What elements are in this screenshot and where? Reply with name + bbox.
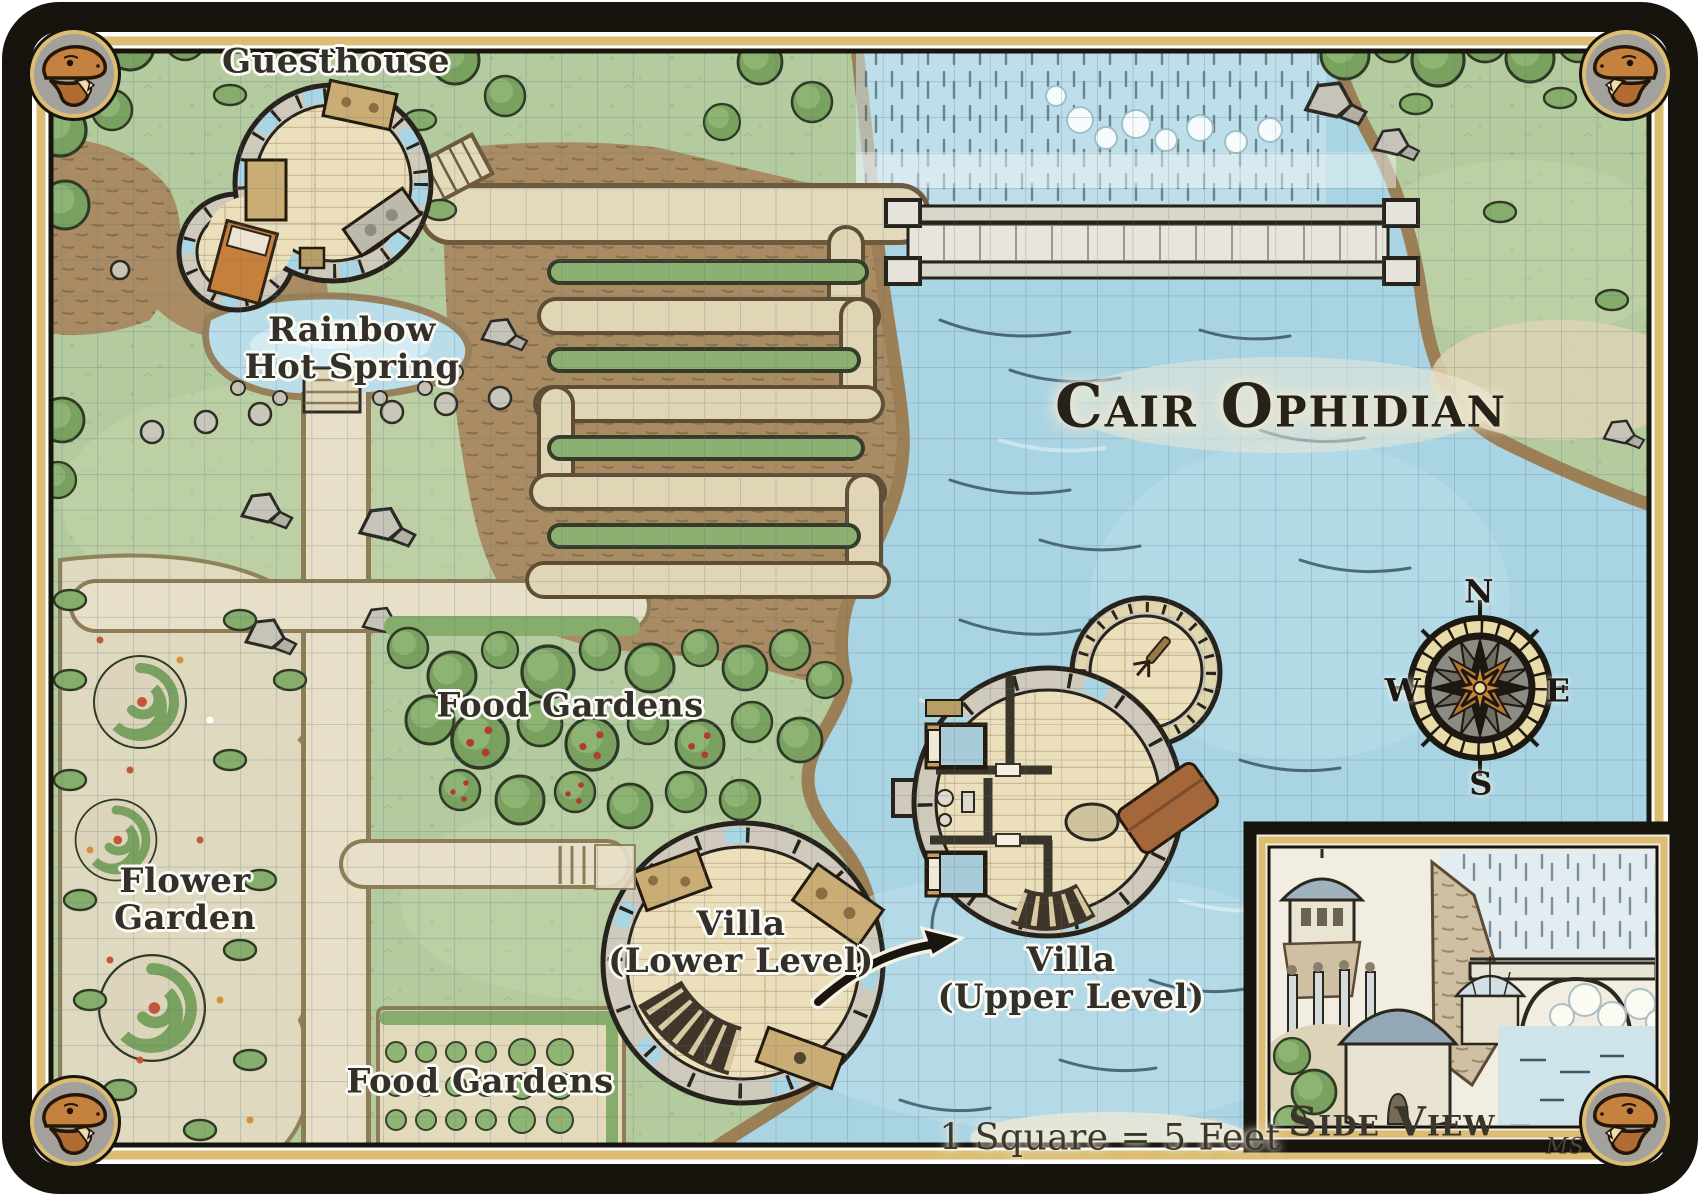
map-artwork [0, 0, 1700, 1196]
map-page: Cair Ophidian Guesthouse RainbowHot Spri… [0, 0, 1700, 1196]
inset-main-dome [1340, 1010, 1456, 1129]
